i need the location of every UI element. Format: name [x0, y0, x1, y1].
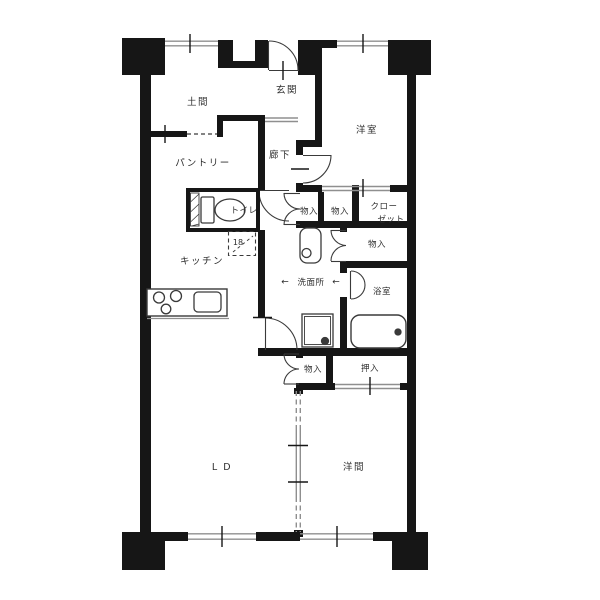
- storage-door-arc: [284, 369, 299, 384]
- storage-door-arc: [331, 246, 346, 262]
- washing-machine-pan: [302, 314, 333, 347]
- washbasin: [300, 228, 321, 263]
- washroom-arrow-left: ←: [281, 278, 289, 288]
- stove-burner: [171, 291, 182, 302]
- toilet-tank: [201, 197, 214, 223]
- wall: [400, 383, 407, 390]
- kitchen-sink: [194, 292, 221, 312]
- floor-plan-page: 土間 玄関 廊下 パントリー 洋室 トイレ 物入 物入 クロー ゼット 物入 キ…: [0, 0, 600, 600]
- wall: [296, 185, 322, 192]
- wall: [294, 388, 303, 394]
- wall: [296, 352, 303, 358]
- room-label-bathroom: 浴室: [373, 286, 391, 297]
- wall: [318, 192, 324, 225]
- pillar-top-left: [122, 38, 165, 75]
- wall: [340, 261, 407, 268]
- labels: 土間 玄関 廊下 パントリー 洋室 トイレ 物入 物入 クロー ゼット 物入 キ…: [175, 84, 404, 473]
- closet-label-line2: ゼット: [377, 214, 404, 225]
- wall: [296, 147, 303, 155]
- room-label-bedroom-lower: 洋間: [343, 461, 365, 473]
- wall: [298, 40, 322, 75]
- washbasin-fixture: [300, 228, 321, 263]
- bathtub-fixture: [351, 315, 406, 348]
- kitchen-counter: [147, 289, 227, 316]
- room-label-bedroom-upper: 洋室: [356, 124, 378, 136]
- washroom-door-arc: [265, 318, 297, 350]
- wall: [151, 131, 187, 137]
- room-label-toilet: トイレ: [230, 206, 257, 216]
- wall: [255, 40, 268, 68]
- wall: [373, 532, 393, 541]
- floor-plan-svg: 土間 玄関 廊下 パントリー 洋室 トイレ 物入 物入 クロー ゼット 物入 キ…: [0, 0, 600, 600]
- wall-right-outer: [407, 73, 416, 537]
- pillar-bottom-left: [122, 532, 165, 570]
- bathroom-door-arc: [351, 271, 365, 299]
- stove-burner: [154, 292, 165, 303]
- stove-burner: [161, 304, 171, 314]
- wall: [165, 532, 188, 541]
- room-label-kitchen: キッチン: [180, 256, 224, 267]
- wall: [258, 121, 265, 190]
- wall: [340, 268, 347, 273]
- washroom-arrow-right: ←: [332, 278, 340, 288]
- wall: [233, 61, 255, 68]
- closet-label-line1: クロー: [370, 202, 397, 212]
- wall: [223, 115, 265, 121]
- storage-label-oshiire: 押入: [361, 363, 379, 374]
- wall: [322, 40, 337, 48]
- pillar-top-right: [388, 40, 431, 75]
- bathtub-drain: [395, 329, 401, 335]
- room-label-genkan: 玄関: [276, 84, 298, 96]
- storage-label-washroom: 物入: [368, 239, 386, 250]
- room-label-doma: 土間: [187, 96, 209, 108]
- washer-drain: [322, 338, 329, 345]
- wall: [315, 75, 322, 145]
- room-label-corridor: 廊下: [269, 149, 291, 161]
- storage-label-hall-2: 物入: [331, 206, 349, 217]
- room-label-pantry: パントリー: [175, 158, 230, 169]
- room-label-washroom: 洗面所: [297, 277, 324, 288]
- pillar-bottom-right: [392, 532, 428, 570]
- refrigerator-size-label: 18: [233, 238, 243, 247]
- wall: [296, 140, 322, 147]
- wall: [218, 40, 233, 68]
- washbasin-drain: [302, 249, 311, 258]
- wall: [217, 115, 223, 137]
- storage-door-arc: [331, 230, 346, 246]
- wall: [256, 532, 300, 541]
- storage-label-hall-1: 物入: [300, 206, 318, 217]
- wall: [258, 230, 265, 318]
- room-label-living-dining: L D: [212, 462, 232, 473]
- storage-label-ld: 物入: [304, 364, 322, 375]
- wall: [390, 185, 407, 192]
- storage-door-arc: [284, 193, 300, 209]
- wall: [340, 297, 347, 348]
